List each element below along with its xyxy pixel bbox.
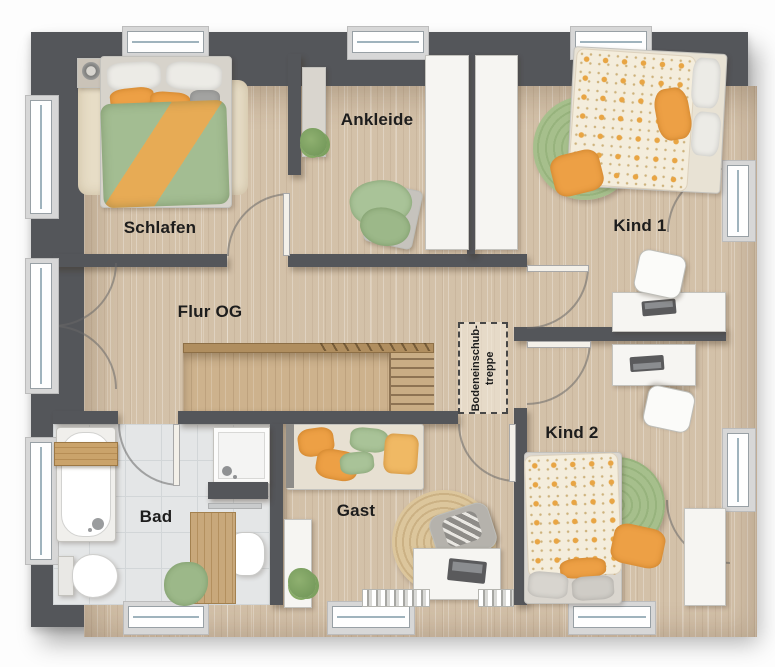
door-leaf-schlafen (283, 193, 290, 256)
window-glass (737, 438, 739, 502)
room-label-flur: Flur OG (160, 302, 260, 322)
towel-rail (208, 503, 262, 509)
wardrobe-ankleide (425, 55, 469, 250)
door-leaf-kind1 (527, 265, 589, 272)
window-schlafen-top (127, 31, 204, 53)
window-ankleide-top (352, 31, 424, 53)
balcony-door-kind2 (727, 433, 749, 507)
bath-counter (208, 482, 268, 499)
attic-stairs-line2: treppe (484, 351, 496, 385)
duvet-gast (383, 433, 420, 475)
room-label-ankleide: Ankleide (327, 110, 427, 130)
lamp (82, 62, 100, 80)
door-leaf-gast (509, 424, 516, 482)
window-glass (133, 616, 199, 618)
wall-schlafen-ankleide (288, 54, 301, 175)
window-bad-left (30, 442, 52, 560)
window-glass (40, 268, 42, 384)
staircase-treads (389, 351, 434, 412)
window-glass (578, 616, 646, 618)
pillow (571, 575, 615, 602)
window-glass (40, 447, 42, 555)
room-label-bad: Bad (116, 507, 196, 527)
window-glass (40, 105, 42, 209)
shower-head (222, 466, 232, 476)
plant-ankleide (300, 128, 327, 156)
cabinet-kind2 (684, 508, 726, 606)
window-glass (357, 41, 419, 43)
room-label-schlafen: Schlafen (110, 218, 210, 238)
laptop-kind1 (641, 299, 676, 317)
laptop-kind2 (630, 355, 665, 372)
bath-caddy (54, 442, 118, 466)
room-label-gast: Gast (316, 501, 396, 521)
wardrobe-kind1 (475, 55, 518, 250)
pillow (165, 61, 222, 92)
books-row (362, 589, 430, 607)
wall-flur-bad-gast (178, 411, 458, 424)
bath-faucet (92, 518, 104, 530)
duvet-schlafen (100, 100, 230, 208)
pillow (690, 111, 722, 158)
plant-gast (288, 568, 316, 598)
bed-headboard-gast (286, 424, 294, 488)
window-glass (132, 41, 199, 43)
attic-stairs-text: Bodeneinschub- treppe (469, 325, 498, 411)
railing-balusters (315, 343, 432, 351)
attic-stairs-line1: Bodeneinschub- (470, 325, 482, 411)
room-label-kind2: Kind 2 (522, 423, 622, 443)
window-glass (337, 616, 405, 618)
attic-stairs-annotation: Bodeneinschub- treppe (458, 322, 508, 414)
window-schlafen-left (30, 100, 52, 214)
window-kind2-bottom (573, 606, 651, 628)
laptop-gast (447, 558, 487, 584)
books-row (478, 589, 514, 607)
floorplan-canvas: Schlafen Ankleide Kind 1 Kind 2 Bad (0, 0, 775, 667)
door-leaf-bad (173, 424, 180, 486)
wall-bad-gast (270, 424, 283, 605)
window-bad-bottom (128, 606, 204, 628)
room-label-kind1: Kind 1 (590, 216, 690, 236)
pillow (527, 570, 569, 599)
door-leaf-kind2 (527, 341, 591, 348)
wall-ankleide-flur (288, 254, 527, 267)
balcony-door-kind1 (727, 165, 749, 237)
wall-flur-bad-left (53, 411, 118, 424)
window-glass (737, 170, 739, 232)
balcony-door-flur (30, 263, 52, 389)
window-gast-bottom (332, 606, 410, 628)
pillow (690, 57, 721, 109)
window-glass (580, 41, 642, 43)
